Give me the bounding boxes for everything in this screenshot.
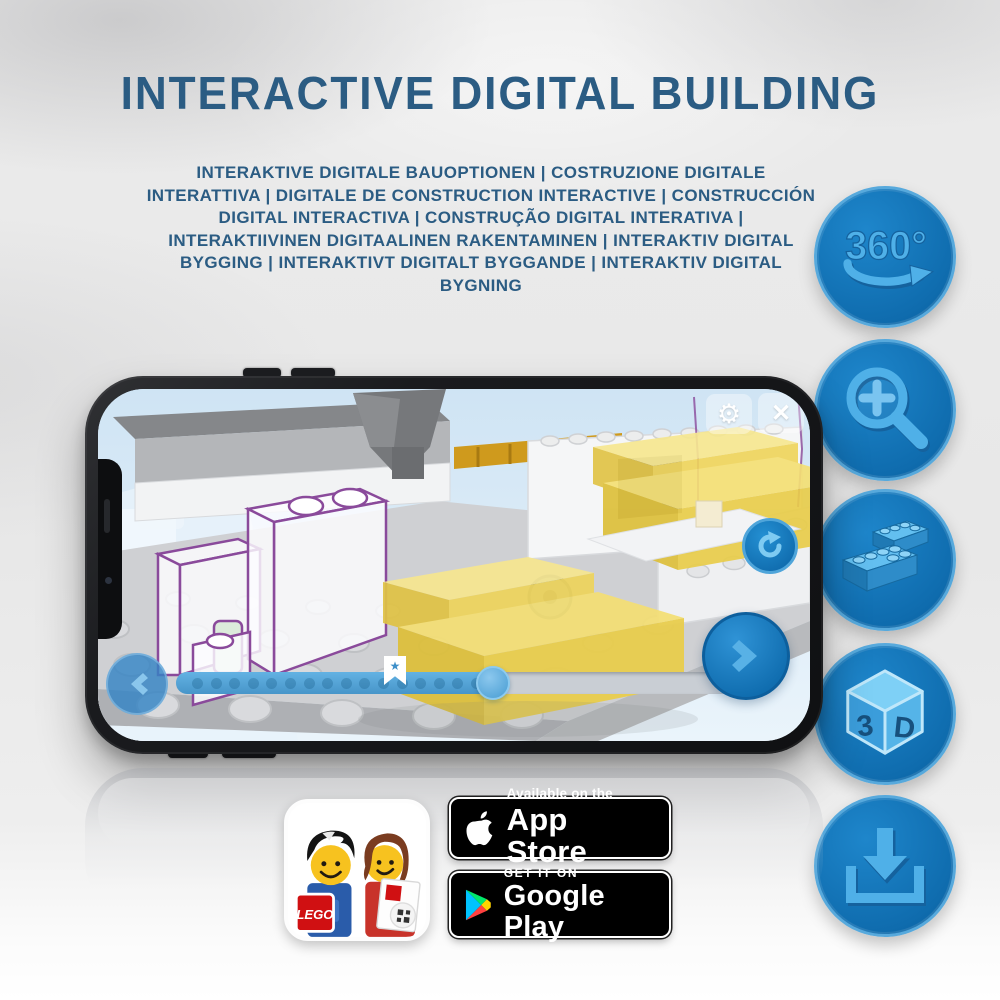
speaker-slit [104,499,110,533]
slider-dot [322,678,333,689]
slider-dot [248,678,259,689]
gear-icon: ⚙ [717,399,741,430]
360-rotation-icon: 360° [833,205,937,309]
product-marketing-image: INTERACTIVE DIGITAL BUILDING INTERAKTIVE… [0,0,1000,1000]
chevron-left-icon [124,669,150,699]
slider-dot [266,678,277,689]
smartphone: ⚙ ✕ [85,376,823,754]
apple-logo-icon [465,810,495,847]
slider-dot [341,678,352,689]
step-slider-fill[interactable] [176,672,498,694]
feature-icon-rail: 360° [814,0,956,1000]
google-play-badge[interactable]: GET IT ON Google Play [449,871,671,938]
download-icon [835,816,935,916]
slider-dot [415,678,426,689]
phone-screen: ⚙ ✕ [98,389,810,741]
slider-dot [192,678,203,689]
feature-zoom [814,339,956,481]
previous-step-button[interactable] [106,653,168,715]
cube-d-label: D [892,711,917,746]
feature-bricks [814,489,956,631]
lego-logo-text: LEGO [296,907,333,922]
google-play-line1: GET IT ON [504,867,655,880]
close-icon: ✕ [771,399,791,428]
google-play-line2: Google Play [504,881,655,942]
app-store-line1: Available on the [507,787,655,801]
slider-dot [304,678,315,689]
feature-download [814,795,956,937]
slider-dot [285,678,296,689]
rotate-icon [754,530,786,562]
lego-minifigures-art: LEGO [288,803,426,937]
feature-360-rotation: 360° [814,186,956,328]
chevron-right-icon [727,634,765,678]
slider-dot [434,678,445,689]
settings-button[interactable]: ⚙ [706,394,752,434]
app-store-badge[interactable]: Available on the App Store [449,797,671,859]
zoom-in-icon [835,360,935,460]
close-button[interactable]: ✕ [758,393,804,433]
feature-3d: 3 D [814,643,956,785]
app-store-line2: App Store [507,804,655,869]
slider-dot [211,678,222,689]
bookmark-star-icon: ★ [390,659,401,673]
rotate-button[interactable] [742,518,798,574]
play-triangle-icon [465,888,492,922]
3d-cube-icon: 3 D [836,665,934,763]
next-step-button[interactable] [702,612,790,700]
slider-handle[interactable] [476,666,510,700]
lego-app-icon[interactable]: LEGO [284,799,430,941]
slider-dot [452,678,463,689]
360-label: 360° [845,224,927,268]
lego-bricks-icon [835,510,935,610]
slider-dot [229,678,240,689]
multilingual-subtitle: INTERAKTIVE DIGITALE BAUOPTIONEN | COSTR… [145,162,817,297]
camera-dot [105,577,112,584]
phone-notch [98,459,122,639]
slider-dot [359,678,370,689]
